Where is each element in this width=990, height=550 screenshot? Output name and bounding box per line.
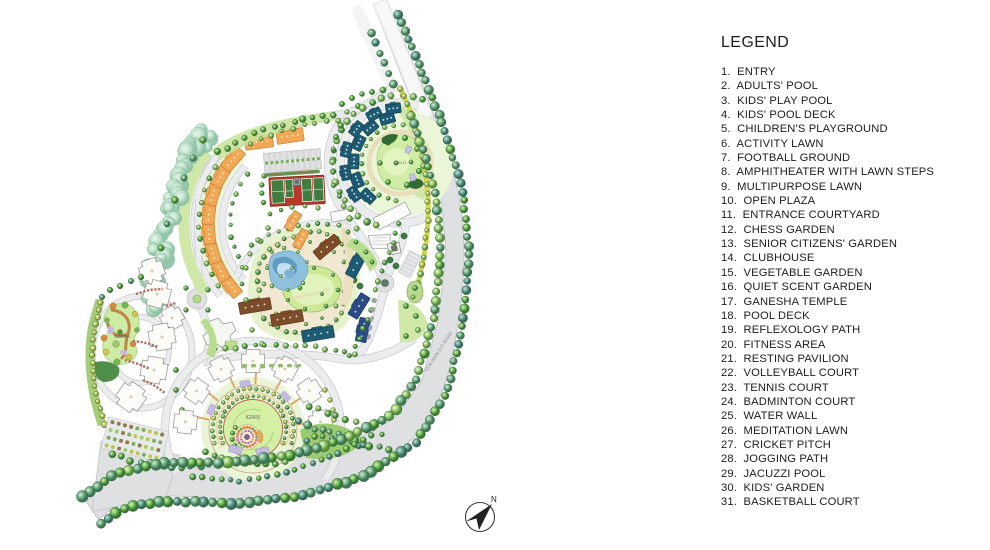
svg-text:SIERRA: SIERRA [114, 334, 130, 339]
svg-text:IGNIS: IGNIS [246, 415, 261, 421]
svg-text:N: N [491, 495, 497, 504]
svg-text:CIELO: CIELO [394, 160, 406, 165]
